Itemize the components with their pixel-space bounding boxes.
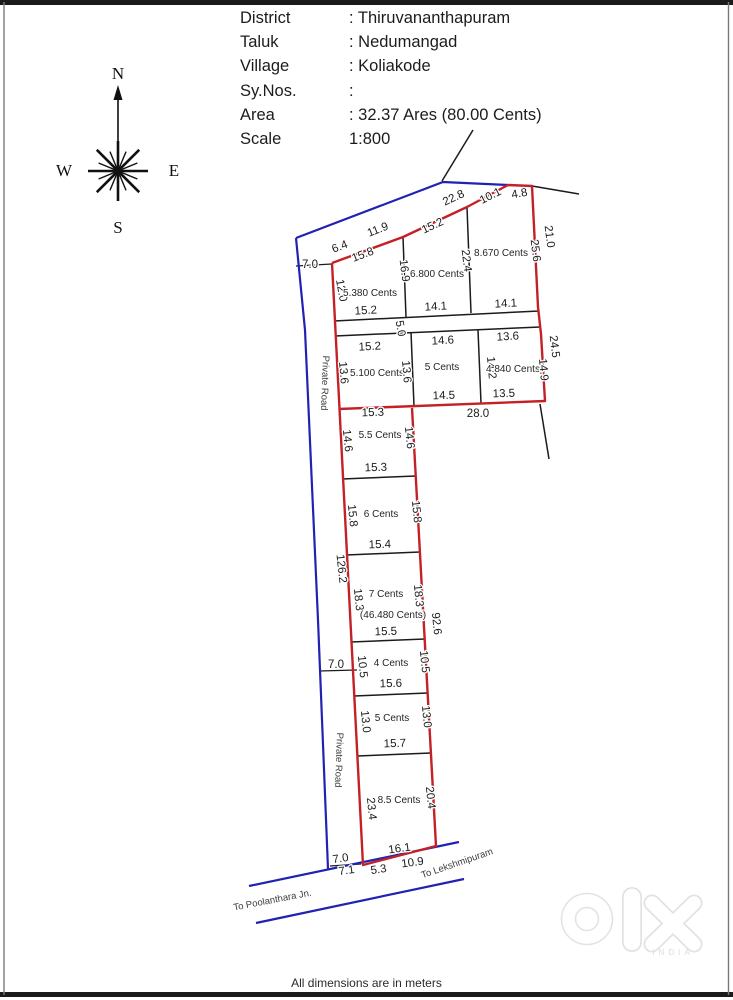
compass-n: N [112, 64, 124, 83]
col6-right-20-4: 20.4 [423, 786, 437, 810]
col2-right-15-8: 15.8 [409, 500, 423, 524]
outer-seg-11-9: 11.9 [366, 221, 390, 240]
frontage-15-2: 15.2 [420, 216, 445, 236]
north-arrow-head [114, 85, 123, 100]
private-road-west-edge [296, 238, 328, 869]
district-value: : Thiruvananthapuram [349, 6, 570, 30]
block2-bottom-14-5: 14.5 [432, 390, 455, 403]
header-row-taluk: Taluk : Nedumangad [240, 30, 570, 54]
plot-8-670-cents: 8.670 Cents [474, 248, 528, 259]
village-value: : Koliakode [349, 54, 570, 78]
block2-mid-13-6: 13.6 [399, 360, 413, 383]
dimensions-note: All dimensions are in meters [0, 976, 733, 990]
outer-seg-22-8: 22.8 [441, 188, 466, 208]
plot-6-800-cents: 6.800 Cents [410, 269, 464, 280]
road-width-mid: 7.0 [328, 659, 344, 671]
col-div-15-6: 15.6 [379, 678, 402, 691]
col6-left-23-4: 23.4 [364, 797, 378, 821]
block1-bottom-14-1b: 14.1 [494, 297, 517, 310]
compass-s: S [113, 218, 122, 237]
scale-value: 1:800 [349, 127, 570, 151]
header-row-district: District : Thiruvananthapuram [240, 6, 570, 30]
area-label: Area [240, 103, 349, 127]
area-value: : 32.37 Ares (80.00 Cents) [349, 103, 570, 127]
east-side-21-0: 21.0 [542, 225, 557, 249]
col3-right-18-3: 18.3 [411, 584, 425, 608]
col-div-15-7: 15.7 [383, 738, 406, 751]
survey-sheet: N S W E [0, 0, 733, 1000]
plot-5-100-cents: 5.100 Cents [350, 368, 404, 379]
col1-left-14-6: 14.6 [340, 429, 354, 453]
col5-left-13-0: 13.0 [358, 710, 372, 734]
col-top-15-3: 15.3 [361, 407, 384, 420]
west-boundary-126-2: 126.2 [334, 554, 349, 584]
taluk-label: Taluk [240, 30, 349, 54]
road-to-lekshmipuram: To Lekshmipuram [420, 846, 495, 881]
plot-8-5-cents: 8.5 Cents [378, 795, 421, 806]
col1-right-14-6: 14.6 [402, 426, 416, 450]
road-top-edge [296, 182, 508, 238]
plot-4-cents: 4 Cents [374, 658, 408, 669]
block2-bottom-13-5: 13.5 [492, 388, 515, 401]
synos-label: Sy.Nos. [240, 79, 349, 103]
header-row-area: Area : 32.37 Ares (80.00 Cents) [240, 103, 570, 127]
plot-4-840-cents: 4.840 Cents [486, 364, 540, 375]
col-div-15-4: 15.4 [368, 539, 391, 552]
private-road-upper: Private Road [318, 355, 331, 410]
synos-value: : [349, 79, 570, 103]
block2-top-13-6: 13.6 [496, 330, 519, 343]
strip-width-5-0: 5.0 [393, 320, 408, 338]
frontage-15-8: 15.8 [350, 246, 375, 265]
header-row-scale: Scale 1:800 [240, 127, 570, 151]
header-row-village: Village : Koliakode [240, 54, 570, 78]
block2-top-15-2: 15.2 [358, 340, 381, 353]
olx-country-label: INDIA [652, 948, 693, 957]
header-row-synos: Sy.Nos. : [240, 79, 570, 103]
plot-5-380-cents: 5.380 Cents [343, 288, 397, 299]
scale-label: Scale [240, 127, 349, 151]
olx-watermark: INDIA [569, 897, 695, 957]
col5-right-13-0: 13.0 [419, 705, 433, 729]
road-width-top: 7.0 [302, 259, 318, 271]
plot-5-cents-b: 5 Cents [375, 713, 409, 724]
title-block: District : Thiruvananthapuram Taluk : Ne… [240, 6, 570, 151]
col4-left-10-5: 10.5 [355, 655, 369, 679]
east-boundary-92-6: 92.6 [429, 612, 443, 636]
private-road-lower: Private Road [332, 732, 345, 787]
block2-right-14-9: 14.9 [536, 358, 550, 381]
east-side-24-5: 24.5 [547, 335, 562, 359]
map-labels: 7.0 6.4 11.9 15.8 22.8 15.2 10.1 4.8 21.… [233, 186, 562, 914]
district-label: District [240, 6, 349, 30]
col3-left-18-3: 18.3 [351, 588, 365, 612]
plot-5-cents-a: 5 Cents [425, 362, 459, 373]
outer-seg-4-8: 4.8 [511, 187, 529, 202]
col-div-15-3: 15.3 [364, 462, 387, 475]
block2-left-13-6: 13.6 [336, 361, 350, 384]
col4-right-10-5: 10.5 [417, 650, 431, 674]
plot-6-cents: 6 Cents [364, 509, 398, 520]
block2-top-14-6: 14.6 [431, 334, 454, 347]
road-seg-10-9: 10.9 [401, 856, 425, 871]
east-side-25-6: 25.6 [528, 239, 543, 263]
compass-w: W [56, 161, 73, 180]
road-seg-5-3: 5.3 [370, 863, 388, 877]
village-label: Village [240, 54, 349, 78]
col2-left-15-8: 15.8 [345, 504, 359, 528]
property-boundary-red [332, 185, 545, 865]
plot-5-5-cents: 5.5 Cents [359, 430, 402, 441]
south-width-28-0: 28.0 [467, 408, 489, 420]
road-to-poolanthara: To Poolanthara Jn. [233, 888, 313, 914]
col-div-15-5: 15.5 [374, 626, 397, 639]
road-width-bottom-7-1: 7.1 [338, 864, 356, 878]
outer-seg-6-4: 6.4 [330, 239, 350, 256]
block1-bottom-14-1a: 14.1 [424, 300, 447, 313]
plot-46-480-cents: (46.480 Cents) [360, 610, 426, 621]
taluk-value: : Nedumangad [349, 30, 570, 54]
block1-bottom-15-2: 15.2 [354, 304, 377, 317]
plot-7-cents: 7 Cents [369, 589, 403, 600]
compass-e: E [169, 161, 179, 180]
compass-rose [88, 85, 148, 201]
